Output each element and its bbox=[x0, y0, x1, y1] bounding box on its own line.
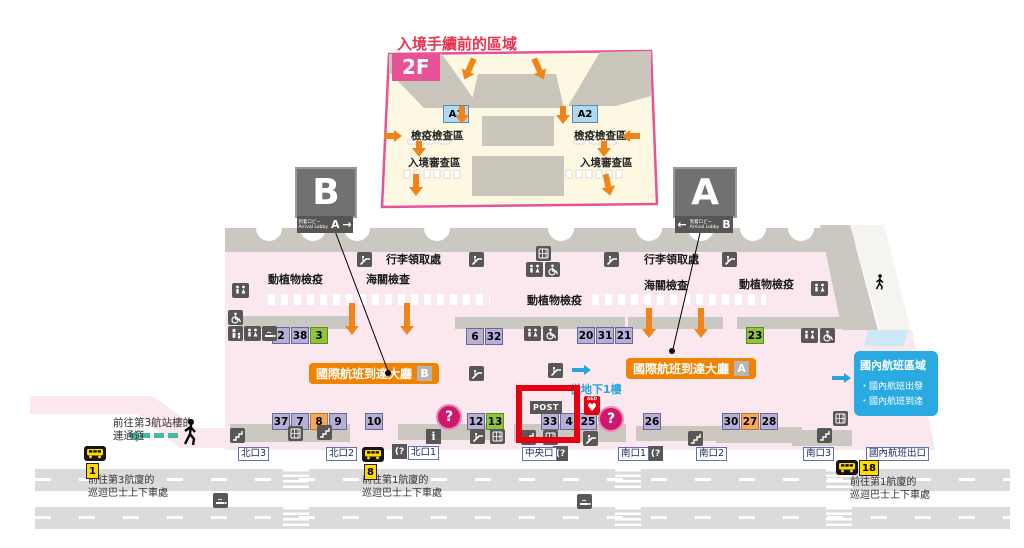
flow-arrow-down bbox=[698, 308, 704, 329]
plant-quarantine-right-label: 動植物檢疫 bbox=[739, 276, 794, 292]
lobby-a-sign: A bbox=[673, 167, 737, 218]
escalator-icon bbox=[470, 429, 485, 444]
wheelchair-icon bbox=[543, 326, 558, 341]
stand-number: 30 bbox=[722, 413, 740, 430]
bus8-note-line2: 巡迴巴士上下車處 bbox=[362, 488, 442, 501]
airport-terminal-map: 前往第3航站樓的 連通道 行李領取處 行李領取處 動植物檢疫 海關檢查 動植物檢… bbox=[0, 0, 1024, 548]
lobby-b-target: A bbox=[331, 218, 340, 231]
bus18-note: 前往第1航廈的 巡迴巴士上下車處 bbox=[850, 477, 930, 502]
toilet-icon bbox=[526, 262, 543, 277]
crosswalk bbox=[615, 469, 641, 491]
arrival-hall-a-letter: A bbox=[734, 361, 749, 376]
stand-group: 203121 bbox=[577, 327, 633, 344]
walking-person-icon bbox=[873, 274, 886, 295]
locker-icon bbox=[288, 426, 303, 441]
lobby-a-subsign: ← 到着ロビーArrival Lobby B bbox=[675, 216, 733, 233]
bus-stop-number: 8 bbox=[364, 464, 377, 480]
stand-number: 28 bbox=[760, 413, 778, 430]
plant-quarantine-mid-label: 動植物檢疫 bbox=[527, 292, 582, 308]
inset-entry-arrow-left bbox=[384, 133, 394, 139]
bus-stop-number: 1 bbox=[86, 463, 99, 479]
question-info-icon: ? bbox=[436, 404, 462, 430]
domestic-link-strip bbox=[864, 330, 910, 346]
escalator-icon bbox=[583, 431, 598, 446]
stand-number: 20 bbox=[577, 327, 595, 344]
question-info-icon: ? bbox=[598, 406, 624, 432]
customs-booth-row-right bbox=[592, 294, 766, 305]
road-lower bbox=[35, 507, 1010, 529]
stand-number: 23 bbox=[746, 327, 764, 344]
lobby-a-arrow: ← bbox=[677, 218, 686, 231]
stand-number: 32 bbox=[485, 328, 503, 345]
lobby-a-sub-text: 到着ロビーArrival Lobby bbox=[690, 220, 720, 230]
smoking-icon bbox=[577, 494, 592, 509]
phone-info-icon: (? bbox=[648, 446, 663, 461]
inset-floor-badge: 2F bbox=[392, 53, 440, 81]
stairs-icon bbox=[317, 425, 332, 440]
arrival-hall-b-label: 國際航班到達大廳 bbox=[316, 365, 412, 382]
stand-group: 2383 bbox=[272, 327, 328, 344]
stand-number: 26 bbox=[643, 413, 661, 430]
exit-north1-label: 北口1 bbox=[408, 446, 439, 460]
stand-number: 27 bbox=[741, 413, 759, 430]
info-icon: i bbox=[426, 429, 441, 444]
exit-south1-label: 南口1 bbox=[618, 447, 649, 461]
lobby-b-arrow: → bbox=[342, 218, 351, 231]
toilet-icon bbox=[244, 326, 261, 341]
exit-south3-label: 南口3 bbox=[803, 447, 834, 461]
locker-icon bbox=[833, 411, 848, 426]
exit-north2-label: 北口2 bbox=[326, 447, 357, 461]
stand-number: 13 bbox=[486, 413, 504, 430]
inset-flow-arrow bbox=[601, 141, 607, 148]
lobby-b-sub-text: 到着ロビーArrival Lobby bbox=[298, 220, 328, 230]
inset-flow-arrow bbox=[560, 106, 566, 115]
bus1-note: 前往第3航廈的 巡迴巴士上下車處 bbox=[88, 475, 168, 500]
bus18-note-line2: 巡迴巴士上下車處 bbox=[850, 490, 930, 503]
stand-number: 12 bbox=[467, 413, 485, 430]
bus18-note-line1: 前往第1航廈的 bbox=[850, 477, 930, 490]
stand-number: 25 bbox=[579, 413, 597, 430]
wheelchair-icon bbox=[545, 262, 560, 277]
smoking-icon bbox=[262, 326, 277, 341]
toilet-icon bbox=[801, 328, 818, 343]
exit-north3-label: 北口3 bbox=[238, 447, 269, 461]
customs-left-label: 海關檢查 bbox=[366, 271, 410, 287]
flow-arrow-down bbox=[646, 308, 652, 329]
escalator-icon bbox=[548, 363, 563, 378]
stand-number: 31 bbox=[596, 327, 614, 344]
phone-info-icon: (? bbox=[392, 444, 407, 459]
exit-south2-label: 南口2 bbox=[696, 447, 727, 461]
stairs-icon bbox=[230, 428, 245, 443]
inset-flow-arrow bbox=[416, 141, 422, 148]
locker-icon bbox=[490, 429, 505, 444]
baggage-claim-right-label: 行李領取處 bbox=[644, 251, 699, 267]
domestic-title: 國內航班區域 bbox=[860, 357, 932, 373]
exit-central-label: 中央口 bbox=[522, 447, 557, 461]
flow-arrow-down bbox=[349, 303, 355, 326]
stand-group: 10 bbox=[365, 413, 383, 430]
bus-stop-number: 18 bbox=[859, 460, 879, 476]
road-dash-line bbox=[35, 516, 1010, 519]
stand-number: 3 bbox=[310, 327, 328, 344]
escalator-icon bbox=[469, 252, 484, 267]
escalator-icon bbox=[722, 252, 737, 267]
toilet-icon bbox=[811, 281, 828, 296]
crosswalk bbox=[283, 507, 309, 529]
arrival-hall-a-banner: 國際航班到達大廳 A bbox=[626, 358, 756, 379]
stand-number: 6 bbox=[466, 328, 484, 345]
exit-domestic-label: 國內航班出口 bbox=[866, 447, 929, 461]
stand-number: 38 bbox=[291, 327, 309, 344]
inset-entry-arrow-right bbox=[630, 133, 640, 139]
customs-booth-row-left bbox=[268, 294, 490, 305]
stand-number: 21 bbox=[615, 327, 633, 344]
inset-title: 入境手續前的區域 bbox=[397, 33, 517, 54]
arrival-hall-b-letter: B bbox=[417, 366, 432, 381]
nursery-icon bbox=[228, 326, 243, 341]
smoking-icon bbox=[213, 493, 228, 508]
inset-immigration-left-label: 入境審查區 bbox=[408, 155, 461, 170]
stand-number: 10 bbox=[365, 413, 383, 430]
aed-icon: AED♥ bbox=[584, 396, 600, 415]
stairs-icon bbox=[688, 431, 703, 446]
locker-icon bbox=[536, 246, 551, 261]
inset-gate-a2: A2 bbox=[572, 105, 598, 123]
inset-immigration-right-label: 入境審查區 bbox=[580, 155, 633, 170]
bus1-note-line1: 前往第3航廈的 bbox=[88, 475, 168, 488]
lobby-b-sign: B bbox=[295, 167, 357, 218]
stand-group: 1213 bbox=[467, 413, 504, 430]
highlight-box bbox=[516, 385, 580, 443]
from-b1-arrow bbox=[572, 368, 584, 372]
inset-exit-arrow bbox=[413, 174, 419, 187]
walking-person-icon bbox=[180, 418, 200, 452]
counter-strip bbox=[628, 317, 723, 329]
bus1-note-line2: 巡迴巴士上下車處 bbox=[88, 488, 168, 501]
toilet-icon bbox=[232, 283, 249, 298]
wheelchair-icon bbox=[228, 310, 243, 325]
stairs-icon bbox=[817, 428, 832, 443]
flow-arrow-down bbox=[404, 303, 410, 326]
bus-icon bbox=[836, 460, 858, 475]
arrival-hall-b-banner: 國際航班到達大廳 B bbox=[309, 363, 439, 384]
crosswalk bbox=[615, 507, 641, 529]
lobby-a-target: B bbox=[722, 218, 730, 231]
bus-icon bbox=[84, 446, 106, 461]
domestic-departures: ・國內航班出發 bbox=[860, 380, 932, 395]
wheelchair-icon bbox=[820, 328, 835, 343]
stand-group: 23 bbox=[746, 327, 764, 344]
domestic-arrivals: ・國內航班到達 bbox=[860, 395, 932, 410]
stand-group: 632 bbox=[466, 328, 503, 345]
domestic-info-box: 國內航班區域 ・國內航班出發 ・國內航班到達 bbox=[854, 351, 938, 416]
stand-group: 302728 bbox=[722, 413, 778, 430]
crosswalk bbox=[283, 469, 309, 491]
customs-right-label: 海關檢查 bbox=[644, 277, 688, 293]
domestic-area-arrow bbox=[832, 376, 844, 380]
arrival-hall-a-label: 國際航班到達大廳 bbox=[633, 360, 729, 377]
toilet-icon bbox=[524, 326, 541, 341]
stand-group: 37789 bbox=[272, 413, 347, 430]
bus-icon bbox=[362, 447, 384, 462]
escalator-icon bbox=[357, 252, 372, 267]
baggage-claim-left-label: 行李領取處 bbox=[386, 251, 441, 267]
escalator-icon bbox=[604, 252, 619, 267]
stand-group: 26 bbox=[643, 413, 661, 430]
crosswalk bbox=[826, 507, 852, 529]
escalator-icon bbox=[469, 366, 484, 381]
plant-quarantine-left-label: 動植物檢疫 bbox=[268, 271, 323, 287]
lobby-b-subsign: 到着ロビーArrival Lobby A → bbox=[297, 216, 353, 233]
aed-heart-glyph: ♥ bbox=[587, 402, 597, 413]
inset-flow-arrow bbox=[459, 106, 465, 115]
